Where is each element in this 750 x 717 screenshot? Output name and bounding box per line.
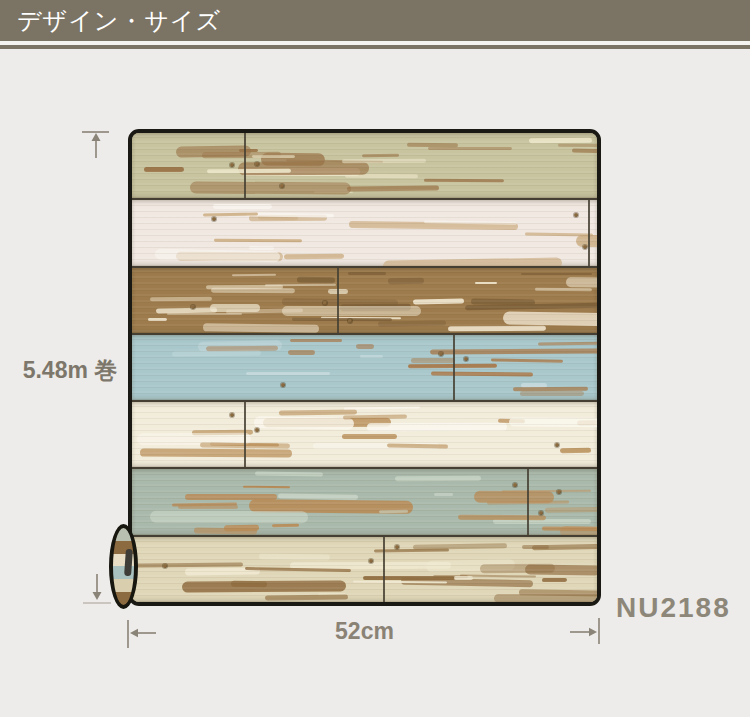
wallpaper-roll-end: [109, 524, 138, 609]
nail-dot: [348, 319, 352, 323]
paint-peel-streak: [521, 273, 592, 276]
wallpaper-sample-image: [128, 129, 601, 606]
paint-peel-streak: [454, 576, 473, 580]
paint-peel-streak: [213, 204, 272, 209]
paint-peel-streak: [203, 323, 319, 333]
nail-dot: [230, 413, 234, 417]
nail-dot: [583, 245, 587, 249]
paint-peel-streak: [284, 253, 344, 259]
section-header-underline: [0, 41, 750, 49]
section-title: デザイン・サイズ: [17, 5, 221, 37]
paint-peel-streak: [383, 257, 562, 265]
nail-dot: [513, 483, 517, 487]
paint-peel-streak: [424, 178, 504, 181]
nail-dot: [555, 443, 559, 447]
paint-peel-streak: [458, 515, 546, 521]
nail-dot: [439, 352, 443, 356]
paint-peel-streak: [362, 154, 399, 157]
paint-peel-streak: [342, 158, 426, 162]
nail-dot: [212, 217, 216, 221]
paint-peel-streak: [542, 578, 567, 582]
paint-peel-streak: [214, 238, 302, 242]
plank-seam: [527, 469, 529, 534]
paint-peel-streak: [154, 249, 279, 263]
paint-peel-streak: [347, 186, 439, 191]
paint-peel-streak: [491, 358, 563, 362]
nail-dot: [281, 383, 285, 387]
paint-peel-streak: [254, 416, 354, 430]
nail-dot: [323, 301, 327, 305]
paint-peel-streak: [144, 167, 184, 173]
paint-peel-streak: [148, 318, 167, 321]
nail-dot: [255, 428, 259, 432]
nail-dot: [539, 511, 543, 515]
paint-peel-streak: [388, 278, 424, 284]
plank-antique-white: [132, 198, 597, 265]
paint-peel-streak: [356, 344, 374, 349]
roll-core-icon: [124, 549, 133, 576]
paint-peel-streak: [167, 313, 242, 316]
plank-sky-blue: [132, 333, 597, 400]
plank-seam: [588, 200, 590, 265]
paint-peel-streak: [522, 545, 549, 549]
plank-seam: [337, 268, 339, 333]
section-header: デザイン・サイズ: [0, 0, 750, 41]
paint-peel-streak: [292, 318, 392, 322]
paint-peel-streak: [232, 274, 276, 277]
paint-peel-streak: [448, 326, 546, 332]
paint-peel-streak: [140, 449, 292, 457]
plank-sage-green: [132, 133, 597, 198]
plank-seam: [244, 402, 246, 467]
paint-peel-streak: [428, 147, 512, 150]
nail-dot: [464, 357, 468, 361]
paint-peel-streak: [520, 391, 584, 396]
paint-peel-streak: [411, 358, 455, 363]
nail-dot: [574, 213, 578, 217]
paint-peel-streak: [525, 232, 593, 236]
roll-width-label: 52cm: [128, 618, 601, 645]
paint-peel-streak: [206, 285, 283, 289]
plank-seam: [453, 335, 455, 400]
nail-dot: [395, 545, 399, 549]
product-code: NU2188: [616, 592, 731, 624]
paint-peel-streak: [545, 506, 597, 512]
paint-peel-streak: [136, 562, 243, 567]
paint-peel-streak: [379, 510, 409, 513]
paint-peel-streak: [255, 472, 323, 477]
paint-peel-streak: [480, 564, 555, 574]
paint-peel-streak: [150, 510, 308, 523]
paint-peel-streak: [395, 476, 481, 481]
paint-peel-streak: [475, 282, 497, 284]
paint-peel-streak: [176, 145, 251, 157]
paint-peel-streak: [243, 485, 290, 488]
plank-weathered-tan: [132, 535, 597, 602]
paint-peel-streak: [297, 277, 335, 284]
nail-dot: [163, 564, 167, 568]
plank-pale-sage: [132, 467, 597, 534]
paint-peel-streak: [272, 524, 299, 528]
paint-peel-streak: [259, 554, 330, 561]
paint-peel-streak: [360, 355, 383, 358]
paint-peel-streak: [224, 525, 259, 531]
paint-peel-streak: [560, 447, 591, 452]
nail-dot: [191, 305, 195, 309]
paint-peel-streak: [378, 320, 446, 326]
nail-dot: [230, 163, 234, 167]
nail-dot: [557, 490, 561, 494]
paint-peel-streak: [150, 296, 212, 301]
plank-seam: [244, 133, 246, 198]
plank-cream-white: [132, 400, 597, 467]
paint-peel-streak: [190, 181, 351, 194]
plank-seam: [383, 537, 385, 602]
paint-peel-streak: [509, 418, 597, 428]
paint-peel-streak: [182, 581, 346, 593]
paint-peel-streak: [529, 138, 592, 144]
paint-peel-streak: [344, 406, 420, 409]
paint-peel-streak: [343, 414, 407, 419]
paint-peel-streak: [246, 372, 330, 375]
paint-peel-streak: [171, 351, 260, 357]
paint-peel-streak: [290, 339, 342, 342]
paint-peel-streak: [342, 434, 397, 439]
paint-peel-streak: [245, 567, 351, 572]
paint-peel-streak: [535, 288, 592, 291]
paint-peel-streak: [558, 144, 597, 148]
height-arrow-up-icon: [81, 130, 111, 160]
paint-peel-streak: [288, 350, 315, 355]
plank-worn-brown: [132, 266, 597, 333]
paint-peel-streak: [282, 306, 421, 316]
paint-peel-streak: [265, 594, 348, 600]
nail-dot: [280, 184, 284, 188]
paint-peel-streak: [538, 342, 597, 346]
paint-peel-streak: [363, 576, 455, 580]
paint-peel-streak: [367, 422, 507, 430]
design-size-section: デザイン・サイズ 5.48m 巻 52cm NU2188: [0, 0, 750, 717]
paint-peel-streak: [348, 272, 386, 275]
paint-peel-streak: [494, 594, 597, 602]
paint-peel-streak: [413, 299, 464, 305]
paint-peel-streak: [434, 493, 453, 496]
paint-peel-streak: [474, 491, 554, 503]
paint-peel-streak: [431, 372, 533, 377]
paint-peel-streak: [572, 149, 597, 154]
paint-peel-streak: [249, 246, 274, 250]
roll-length-label: 5.48m 巻: [14, 355, 126, 386]
